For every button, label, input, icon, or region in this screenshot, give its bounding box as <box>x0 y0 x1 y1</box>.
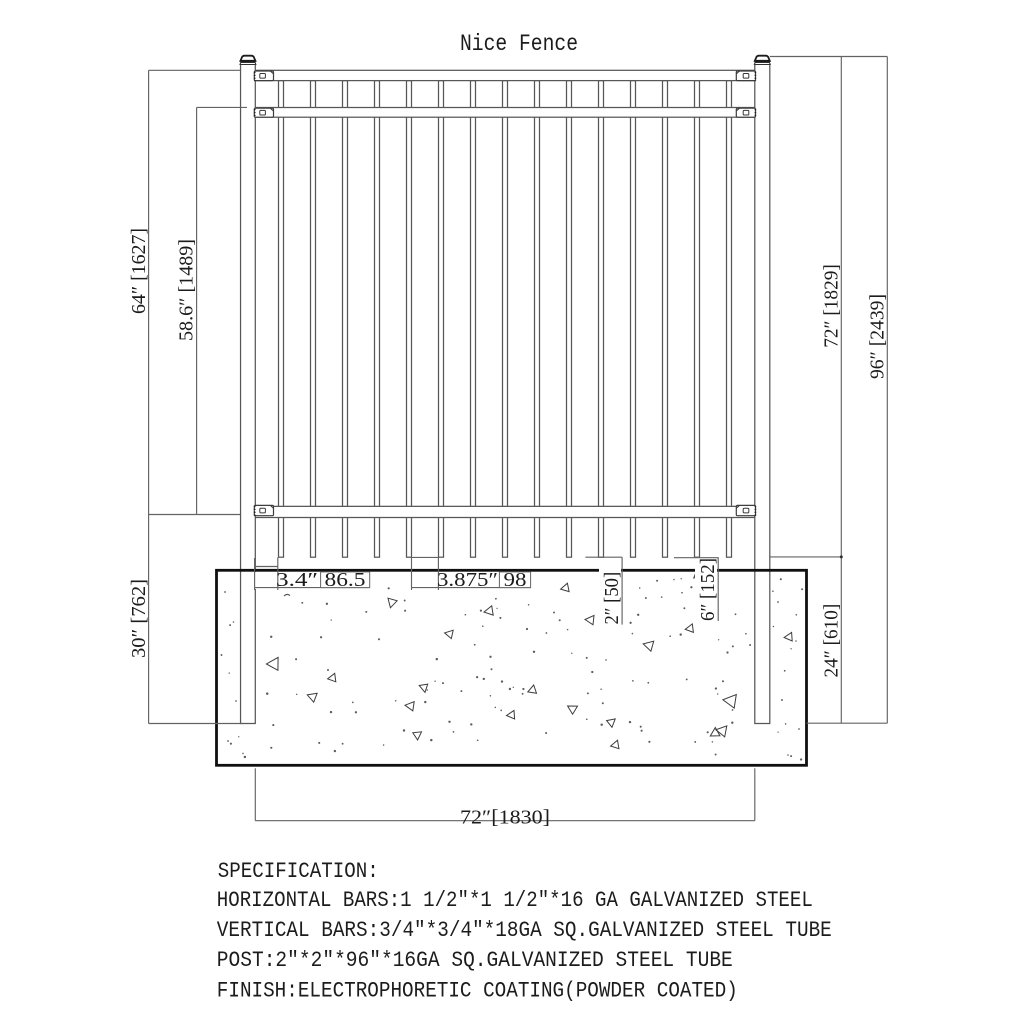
svg-text:86.5: 86.5 <box>325 569 366 591</box>
svg-text:VERTICAL BARS:3/4″*3/4″*18GA S: VERTICAL BARS:3/4″*3/4″*18GA SQ.GALVANIZ… <box>217 917 832 943</box>
svg-text:Nice Fence: Nice Fence <box>460 31 578 58</box>
svg-text:FINISH:ELECTROPHORETIC COATING: FINISH:ELECTROPHORETIC COATING(POWDER CO… <box>217 978 738 1004</box>
svg-text:HORIZONTAL BARS:1 1/2″*1 1/2″*: HORIZONTAL BARS:1 1/2″*1 1/2″*16 GA GALV… <box>217 887 813 913</box>
svg-text:96″ [2439]: 96″ [2439] <box>866 294 888 379</box>
svg-text:3.875″: 3.875″ <box>437 569 498 591</box>
svg-text:64″ [1627]: 64″ [1627] <box>128 228 150 314</box>
svg-text:24″ [610]: 24″ [610] <box>820 604 842 678</box>
svg-text:30″ [762]: 30″ [762] <box>128 579 150 658</box>
svg-text:3.4″: 3.4″ <box>276 569 318 591</box>
svg-text:6″ [152]: 6″ [152] <box>697 558 719 621</box>
svg-text:58.6″ [1489]: 58.6″ [1489] <box>176 239 198 341</box>
svg-text:72″[1830]: 72″[1830] <box>460 806 550 828</box>
svg-text:SPECIFICATION:: SPECIFICATION: <box>218 858 379 884</box>
svg-text:2″ [50]: 2″ [50] <box>601 572 623 625</box>
svg-text:98: 98 <box>504 569 527 591</box>
svg-text:72″ [1829]: 72″ [1829] <box>820 264 842 348</box>
svg-text:POST:2″*2″*96″*16GA SQ.GALVANI: POST:2″*2″*96″*16GA SQ.GALVANIZED STEEL … <box>217 947 733 973</box>
